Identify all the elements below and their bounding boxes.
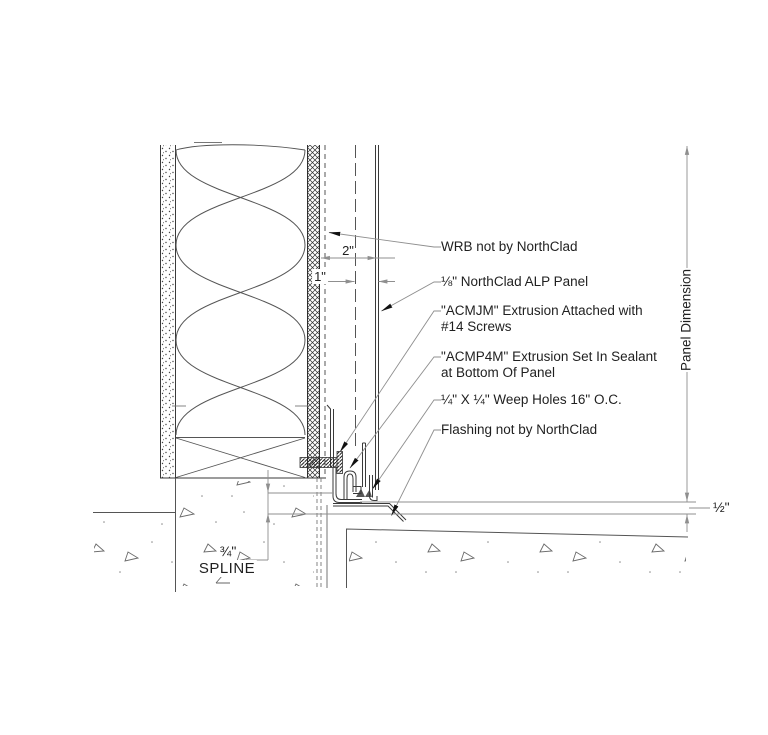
dim-label-three-quarter: ¾" — [220, 543, 237, 559]
sheathing-strip — [307, 145, 320, 478]
callout-wrb: WRB not by NorthClad — [441, 239, 578, 255]
batt-insulation — [176, 145, 305, 435]
callout-alp-panel: ⅛" NorthClad ALP Panel — [441, 274, 588, 290]
callout-acmjm-line1: "ACMJM" Extrusion Attached with — [441, 303, 643, 319]
callout-acmjm: "ACMJM" Extrusion Attached with #14 Scre… — [441, 303, 643, 335]
spline-label: SPLINE — [197, 560, 257, 577]
dim-label-1in: 1" — [312, 269, 328, 284]
interior-finish-layer — [160, 145, 176, 478]
leader-lines — [329, 233, 441, 516]
callout-acmp4m-line2: at Bottom Of Panel — [441, 365, 657, 381]
callout-acmp4m: "ACMP4M" Extrusion Set In Sealant at Bot… — [441, 349, 657, 381]
leader-weep — [373, 400, 442, 489]
callout-acmjm-line2: #14 Screws — [441, 319, 643, 335]
extension-lines — [268, 493, 696, 514]
dim-label-half-inch: ½" — [713, 499, 730, 515]
drawing-canvas: WRB not by NorthClad ⅛" NorthClad ALP Pa… — [0, 0, 768, 735]
alp-panel — [376, 145, 379, 490]
panel-dimension-label: Panel Dimension — [679, 269, 694, 371]
callout-acmp4m-line1: "ACMP4M" Extrusion Set In Sealant — [441, 349, 657, 365]
dim-half-inch — [687, 508, 710, 532]
callout-flashing: Flashing not by NorthClad — [441, 422, 597, 438]
dim-label-2in: 2" — [342, 243, 354, 258]
leader-acmp4m — [350, 357, 441, 468]
foundation-concrete — [93, 478, 688, 592]
leader-flashing — [392, 430, 442, 516]
leader-panel — [382, 282, 442, 311]
flashing — [333, 504, 406, 522]
callout-weep-holes: ¼" X ¼" Weep Holes 16" O.C. — [441, 392, 622, 408]
